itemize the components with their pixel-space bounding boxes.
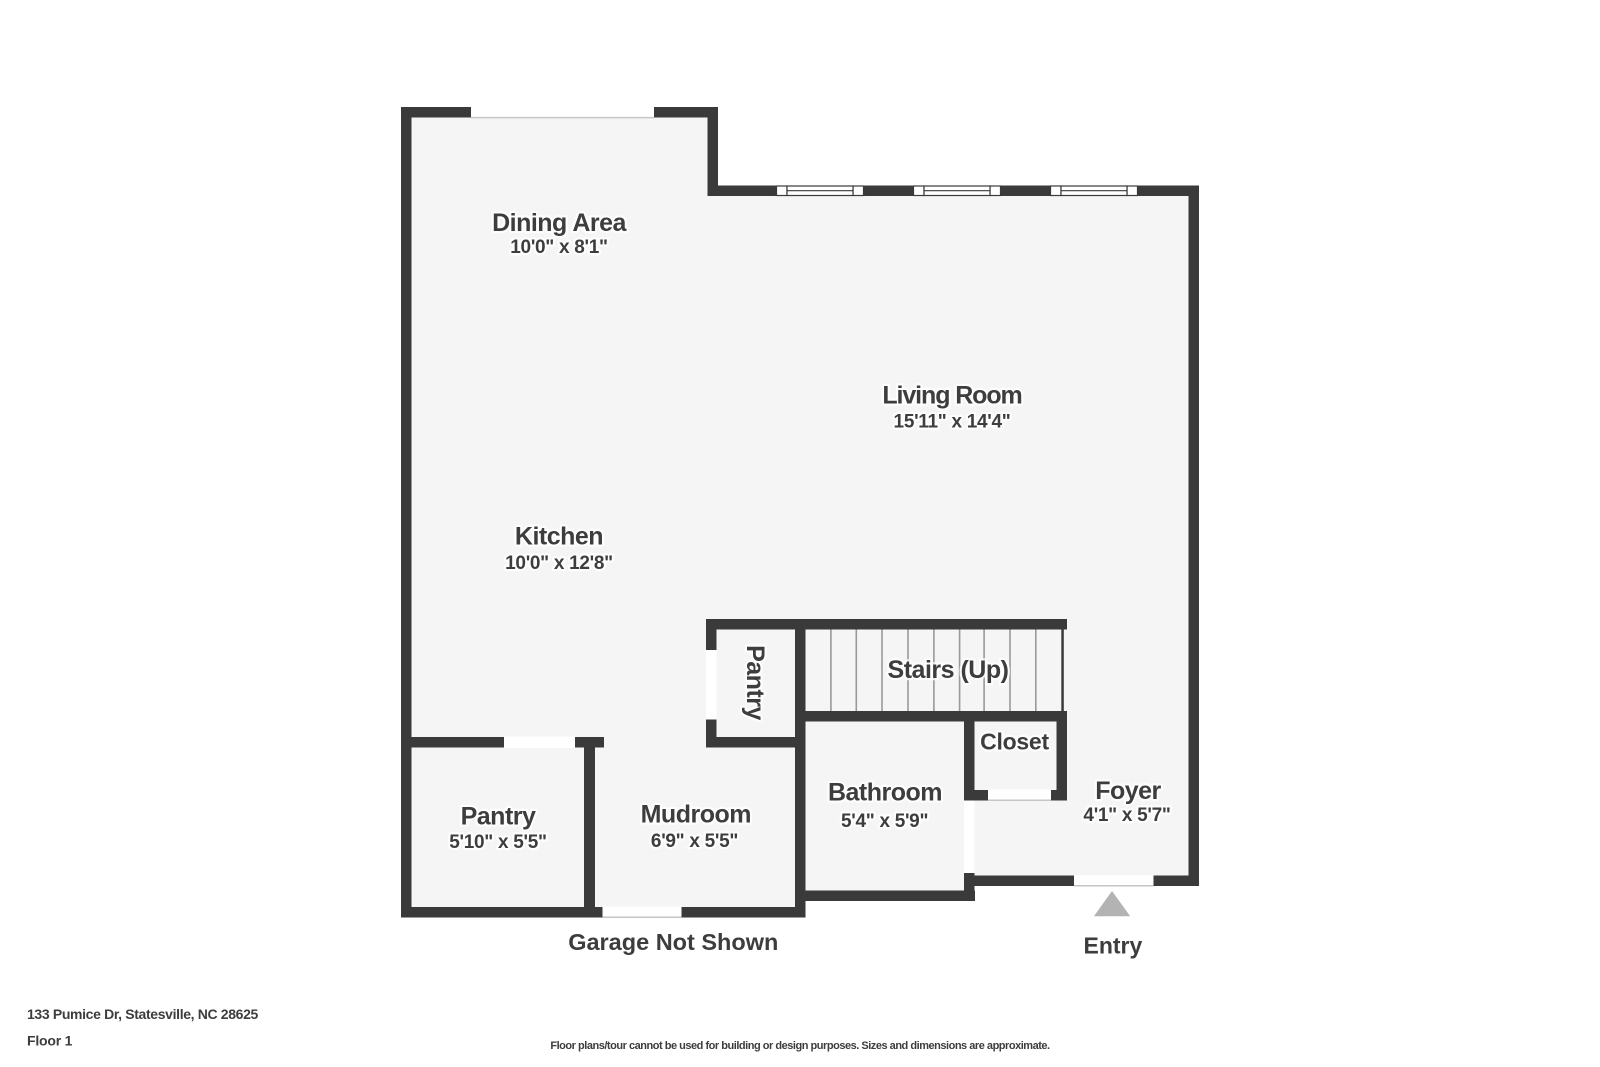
svg-text:5'4" x 5'9": 5'4" x 5'9" xyxy=(841,811,928,832)
svg-text:Foyer: Foyer xyxy=(1095,777,1161,805)
svg-text:133 Pumice Dr, Statesville, NC: 133 Pumice Dr, Statesville, NC 28625 xyxy=(27,1006,259,1022)
svg-text:Bathroom: Bathroom xyxy=(828,779,942,807)
svg-text:Living Room: Living Room xyxy=(882,382,1021,410)
svg-text:Pantry: Pantry xyxy=(741,645,769,720)
svg-text:10'0" x 12'8": 10'0" x 12'8" xyxy=(505,553,613,574)
svg-text:Stairs (Up): Stairs (Up) xyxy=(888,656,1009,684)
svg-text:15'11" x 14'4": 15'11" x 14'4" xyxy=(894,412,1011,433)
svg-text:Dining Area: Dining Area xyxy=(492,209,627,237)
svg-text:4'1" x 5'7": 4'1" x 5'7" xyxy=(1083,805,1170,826)
svg-text:Floor plans/tour cannot be use: Floor plans/tour cannot be used for buil… xyxy=(550,1040,1050,1052)
svg-text:5'10" x 5'5": 5'10" x 5'5" xyxy=(449,832,546,853)
svg-text:Pantry: Pantry xyxy=(461,802,536,830)
svg-text:Mudroom: Mudroom xyxy=(641,801,751,829)
svg-text:Garage Not Shown: Garage Not Shown xyxy=(568,929,778,955)
svg-text:Floor 1: Floor 1 xyxy=(27,1033,73,1049)
svg-text:Entry: Entry xyxy=(1084,932,1143,958)
svg-text:Kitchen: Kitchen xyxy=(515,523,603,551)
svg-text:6'9" x 5'5": 6'9" x 5'5" xyxy=(651,831,738,852)
svg-text:10'0" x 8'1": 10'0" x 8'1" xyxy=(510,237,607,258)
svg-text:Closet: Closet xyxy=(980,729,1049,755)
